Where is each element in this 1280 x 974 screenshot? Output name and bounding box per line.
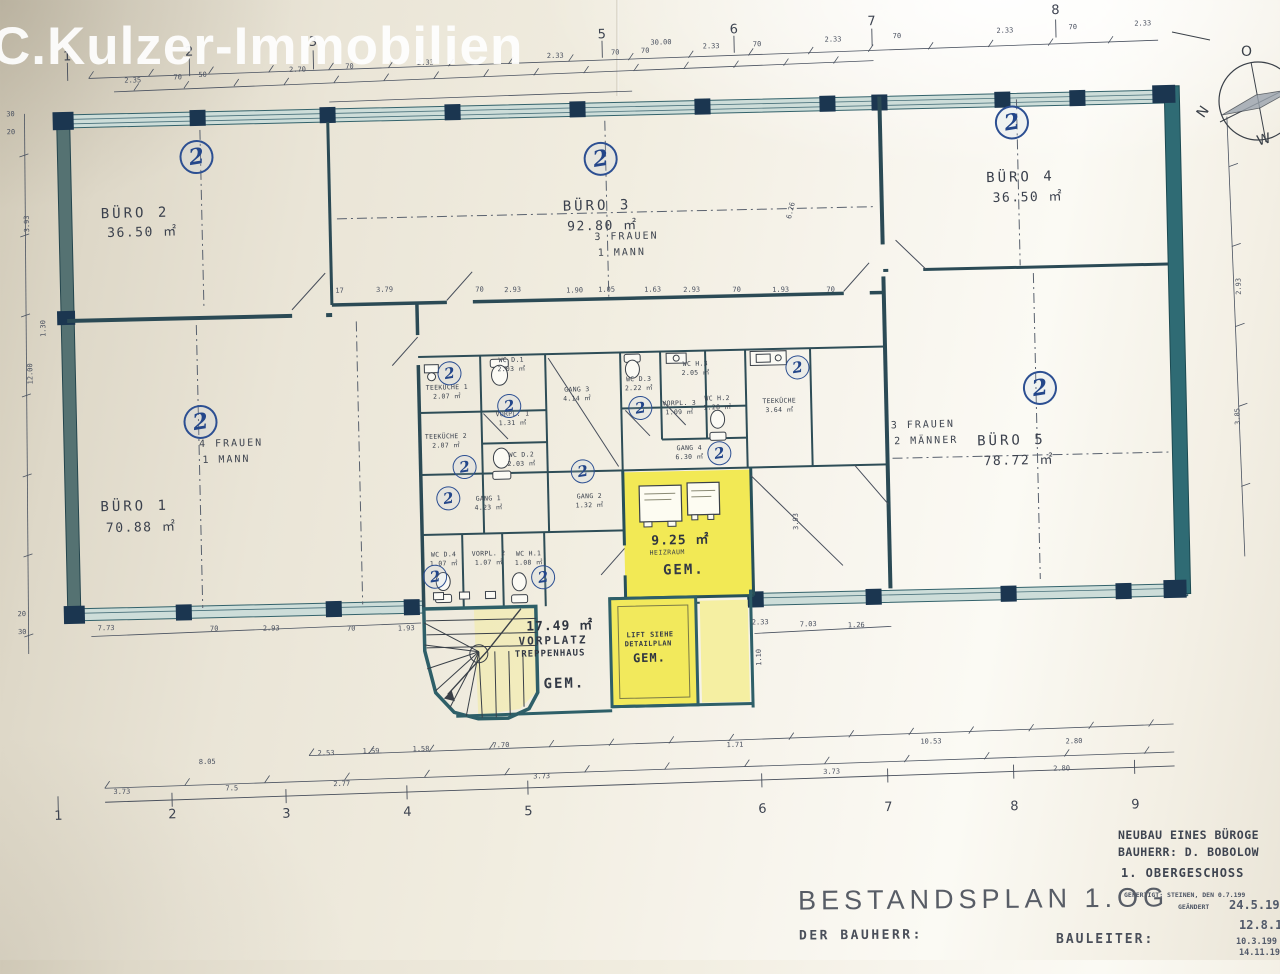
room-note-buero1-2: 1 MANN <box>202 454 250 466</box>
room-note-buero1-1: 4 FRAUEN <box>199 438 263 450</box>
plan-linework <box>0 0 1280 974</box>
client-line: BAUHERR: D. BOBOLOW <box>1118 845 1259 859</box>
project-title: NEUBAU EINES BÜROGE <box>1118 828 1259 842</box>
owner-label: DER BAUHERR: <box>799 927 923 943</box>
heizraum-label: HEIZRAUM <box>650 548 685 557</box>
room-area-buero1: 70.88 ㎡ <box>106 516 177 537</box>
lift-label-1: LIFT SIEHE <box>626 630 673 639</box>
vorplatz-gem: GEM. <box>543 675 585 692</box>
room-area-buero4: 36.50 ㎡ <box>992 185 1063 206</box>
room-label-buero5: BÜRO 5 <box>977 432 1046 450</box>
room-area-buero2: 36.50 ㎡ <box>107 220 178 241</box>
scanned-floor-plan-page: { "watermark": "C.Kulzer-Immobilien", "c… <box>0 0 1280 960</box>
vorplatz-area: 17.49 ㎡ <box>526 614 593 635</box>
revision-date-3: 10.3.199 <box>1236 937 1277 947</box>
vorplatz-label: VORPLATZ <box>518 633 587 648</box>
room-area-buero5: 78.72 ㎡ <box>983 449 1054 470</box>
floor-plan: BÜRO 2 36.50 ㎡ BÜRO 3 92.80 ㎡ 3 FRAUEN 1… <box>0 0 1280 974</box>
revision-date-4: 14.11.19 <box>1239 948 1280 958</box>
floor-label: 1. OBERGESCHOSS <box>1121 866 1244 880</box>
revision-date-1: 24.5.199 <box>1229 898 1280 912</box>
room-note-buero5-2: 2 MÄNNER <box>894 435 958 447</box>
room-label-buero4: BÜRO 4 <box>986 169 1055 187</box>
plan-title: BESTANDSPLAN 1.OG <box>798 882 1169 916</box>
room-note-buero5-1: 3 FRAUEN <box>891 419 955 431</box>
heizraum-gem: GEM. <box>663 562 705 579</box>
room-note-buero3-1: 3 FRAUEN <box>594 231 658 243</box>
changed-label: GEÄNDERT <box>1178 903 1209 911</box>
lift-gem: GEM. <box>633 650 666 665</box>
treppenhaus-label: TREPPENHAUS <box>515 648 586 660</box>
site-manager-label: BAULEITER: <box>1056 932 1154 947</box>
compass-east-label: O <box>1241 44 1252 60</box>
room-label-buero3: BÜRO 3 <box>563 197 632 215</box>
heizraum-area: 9.25 ㎡ <box>651 528 710 548</box>
room-label-buero2: BÜRO 2 <box>101 205 170 223</box>
room-note-buero3-2: 1 MANN <box>598 247 646 259</box>
room-label-buero1: BÜRO 1 <box>100 498 169 516</box>
revision-date-2: 12.8.19 <box>1239 918 1280 932</box>
lift-label-2: DETAILPLAN <box>625 639 672 648</box>
watermark: C.Kulzer-Immobilien <box>0 16 523 77</box>
